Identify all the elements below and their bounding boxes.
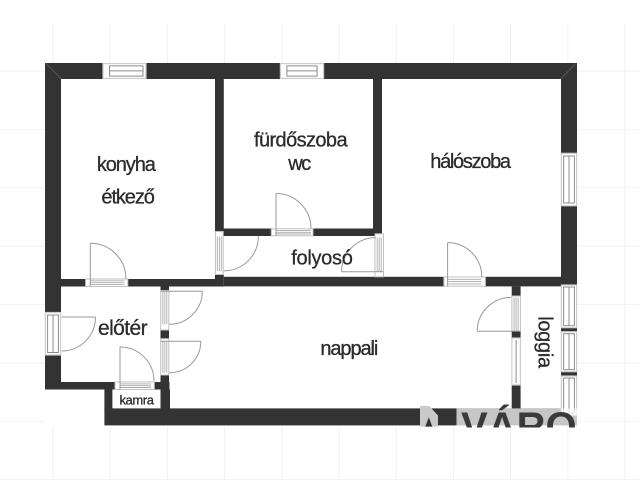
svg-text:hálószoba: hálószoba — [430, 151, 512, 173]
svg-text:étkező: étkező — [101, 186, 154, 208]
svg-text:loggia: loggia — [534, 316, 556, 369]
svg-text:előtér: előtér — [98, 317, 148, 340]
svg-text:kamra: kamra — [119, 392, 154, 407]
svg-text:nappali: nappali — [320, 338, 377, 360]
svg-text:wc: wc — [287, 153, 311, 175]
svg-text:fürdőszoba: fürdőszoba — [254, 129, 348, 151]
svg-text:folyosó: folyosó — [291, 247, 352, 269]
svg-text:konyha: konyha — [97, 154, 157, 176]
